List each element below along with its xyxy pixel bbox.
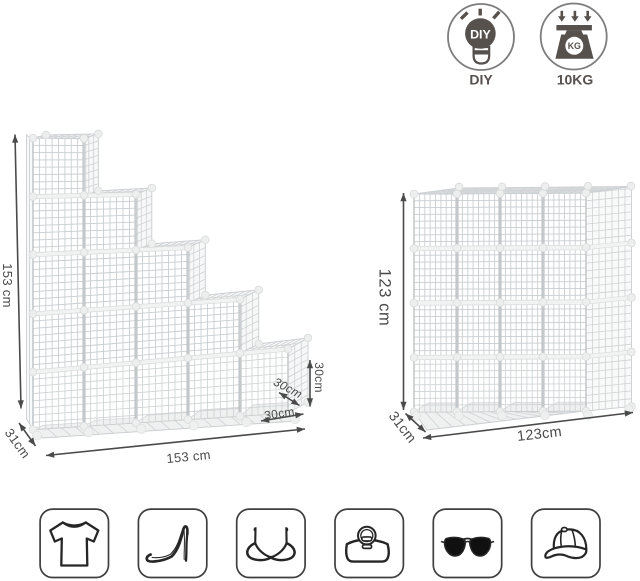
svg-text:10KG: 10KG [557, 72, 594, 88]
svg-text:DIY: DIY [469, 72, 493, 88]
svg-text:153 cm: 153 cm [0, 263, 15, 307]
svg-text:30cm: 30cm [312, 362, 326, 393]
svg-text:KG: KG [568, 41, 581, 51]
svg-text:123 cm: 123 cm [376, 269, 394, 327]
svg-text:DIY: DIY [470, 27, 491, 41]
